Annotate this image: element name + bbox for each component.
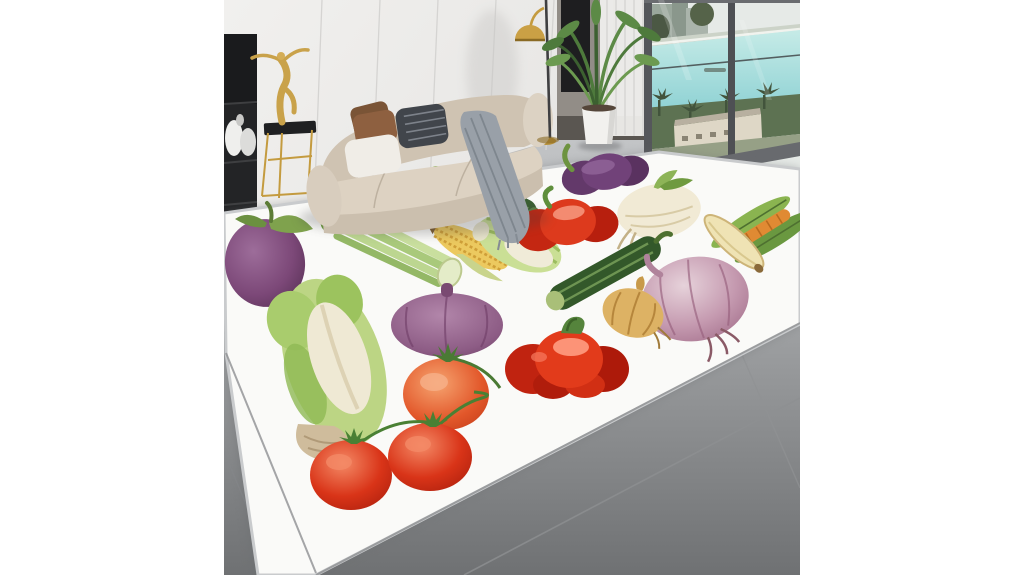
boat (704, 68, 726, 72)
living-room-photo: Product photo of a white area rug printe… (224, 0, 800, 575)
product-photo-frame: Product photo of a white area rug printe… (0, 0, 1024, 575)
